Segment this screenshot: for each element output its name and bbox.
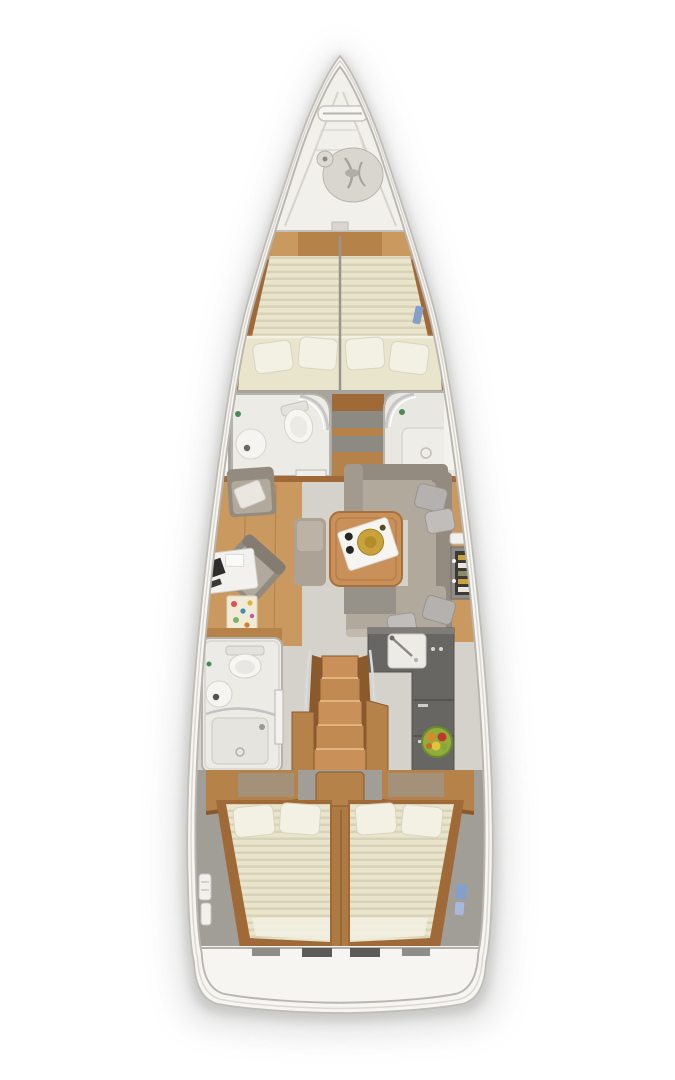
berth-pillow bbox=[298, 336, 339, 370]
sofa-pillow bbox=[424, 508, 455, 535]
bow-roller bbox=[318, 106, 368, 121]
aft-head bbox=[202, 628, 283, 772]
coffee-table bbox=[330, 512, 402, 586]
footboard bbox=[252, 948, 280, 956]
head-door bbox=[275, 690, 283, 744]
stove-knob bbox=[439, 647, 443, 651]
shower-tray bbox=[212, 718, 268, 764]
foredeck bbox=[170, 58, 510, 244]
rope-clutches-port bbox=[199, 874, 211, 925]
berth-pillow bbox=[355, 803, 397, 836]
floorplan-svg bbox=[0, 0, 675, 1080]
ottoman bbox=[294, 518, 326, 586]
stair-tread bbox=[314, 749, 366, 773]
armchair bbox=[226, 466, 276, 517]
footboard bbox=[350, 948, 380, 957]
footboard bbox=[402, 948, 430, 956]
stair-tread bbox=[318, 701, 362, 725]
sink-drain bbox=[414, 658, 418, 662]
locker-shelf bbox=[238, 773, 294, 797]
locker-handle bbox=[418, 704, 428, 707]
berth-pillow bbox=[345, 337, 385, 371]
mooring-cleat bbox=[317, 151, 333, 167]
berth-pillow bbox=[233, 804, 276, 838]
interior bbox=[170, 58, 510, 1016]
stairs bbox=[314, 656, 366, 773]
aft-cabins bbox=[196, 770, 486, 952]
tap-accent bbox=[207, 662, 212, 667]
round-sink bbox=[206, 681, 232, 707]
berth-pillow bbox=[388, 341, 429, 375]
toilet bbox=[226, 646, 264, 678]
tap-accent bbox=[399, 409, 405, 415]
counter-edge bbox=[368, 628, 454, 634]
sink-drain bbox=[244, 445, 250, 451]
sink-drain bbox=[213, 694, 219, 700]
berth-pillow bbox=[401, 804, 444, 838]
yacht-floorplan-canvas bbox=[0, 0, 675, 1080]
berth-pillow bbox=[279, 803, 321, 836]
footboard bbox=[302, 948, 332, 957]
locker-shelf bbox=[388, 773, 444, 797]
stair-tread bbox=[320, 678, 360, 701]
stove-knob bbox=[431, 647, 435, 651]
stair-cabinet-port bbox=[292, 712, 314, 774]
wardrobe-shelf-top bbox=[332, 394, 384, 411]
galley-sink bbox=[388, 634, 426, 668]
forward-head bbox=[232, 394, 330, 479]
fruit-bowl bbox=[422, 727, 452, 757]
berth-pillow bbox=[252, 340, 294, 375]
round-sink bbox=[236, 429, 266, 459]
stair-cabinet-starboard bbox=[366, 700, 388, 774]
tap-accent bbox=[235, 411, 241, 417]
shower-head bbox=[259, 724, 265, 730]
stair-tread bbox=[322, 656, 358, 678]
mast-step bbox=[332, 222, 348, 231]
papers bbox=[226, 554, 244, 566]
stair-tread bbox=[316, 725, 364, 749]
wardrobe-shelf-mid bbox=[332, 428, 384, 436]
